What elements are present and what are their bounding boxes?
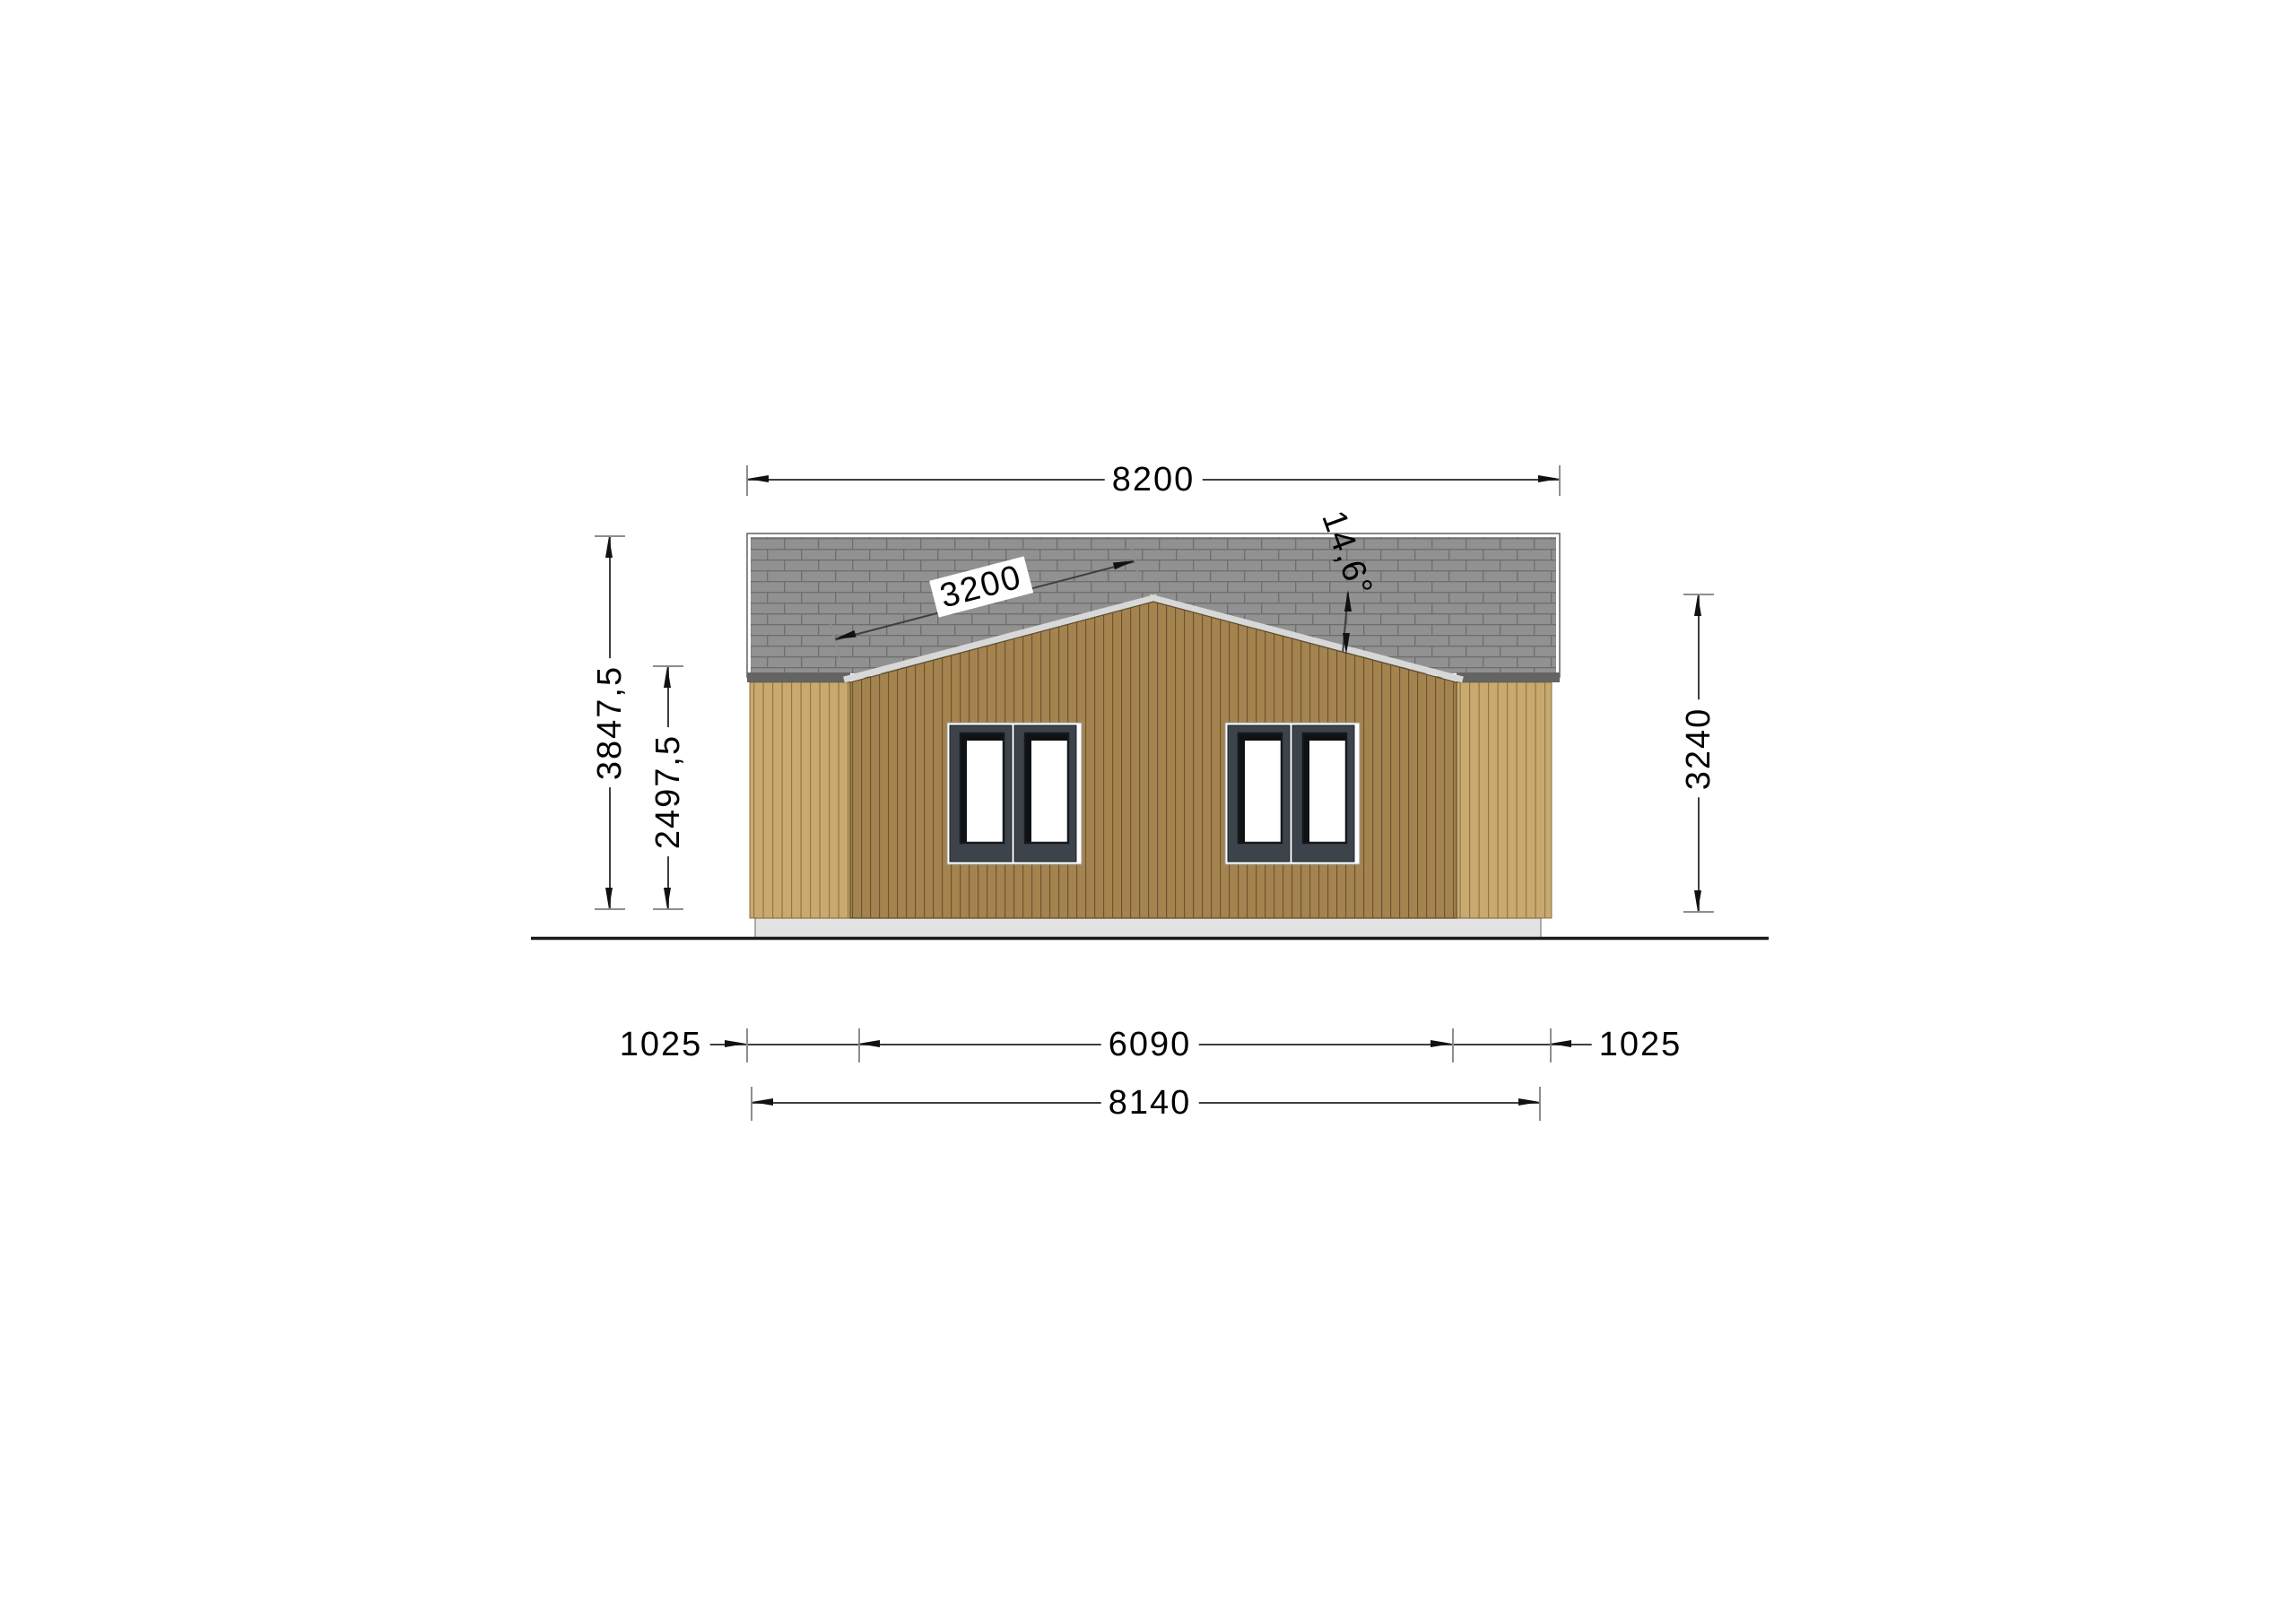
window-pair-left: [947, 723, 1082, 864]
dim-ridge-height-label: 3240: [1680, 700, 1718, 798]
window-sash-shadow: [961, 734, 967, 842]
window-glass: [1303, 733, 1346, 843]
house-graphic: [0, 0, 2296, 1622]
dim-center-width-label: 6090: [1101, 1026, 1199, 1063]
window-sash-shadow: [1239, 734, 1245, 842]
dim-total-height-label: 3847,5: [591, 658, 629, 787]
dim-right-offset-label: 1025: [1592, 1026, 1690, 1063]
eave-edge-left: [747, 672, 850, 682]
window-sash-shadow: [961, 734, 1003, 741]
window-sash-shadow: [1239, 734, 1281, 741]
window-sash-shadow: [1026, 734, 1031, 842]
dim-left-offset-label: 1025: [613, 1026, 710, 1063]
dim-roof-width-label: 8200: [1105, 461, 1203, 499]
window-sash-shadow: [1304, 734, 1345, 741]
dim-base-width: 8140: [752, 1089, 1540, 1117]
foundation-base: [755, 918, 1541, 938]
window-pair-right: [1225, 723, 1360, 864]
wing-wall-right: [1457, 682, 1552, 918]
dim-wall-height-label: 2497,5: [649, 727, 687, 856]
dim-roof-angle-arrow: [1335, 590, 1360, 655]
dim-roof-width: 8200: [747, 465, 1560, 494]
window-glass: [1239, 733, 1282, 843]
dim-base-width-label: 8140: [1101, 1084, 1199, 1122]
elevation-canvas: 8200 3200 14,6° 3847,5 2497,5: [0, 0, 2296, 1622]
dim-bottom-row: 1025 6090 1025: [619, 1030, 1704, 1059]
window-sash-shadow: [1026, 734, 1067, 741]
dim-ridge-height: 3240: [1684, 594, 1713, 912]
window-glass: [961, 733, 1004, 843]
window-sash-shadow: [1304, 734, 1309, 842]
window-glass: [1025, 733, 1068, 843]
dim-wall-height: 2497,5: [654, 666, 683, 909]
eave-edge-right: [1457, 672, 1560, 682]
wing-wall-left: [750, 682, 850, 918]
dim-total-height: 3847,5: [596, 536, 624, 909]
